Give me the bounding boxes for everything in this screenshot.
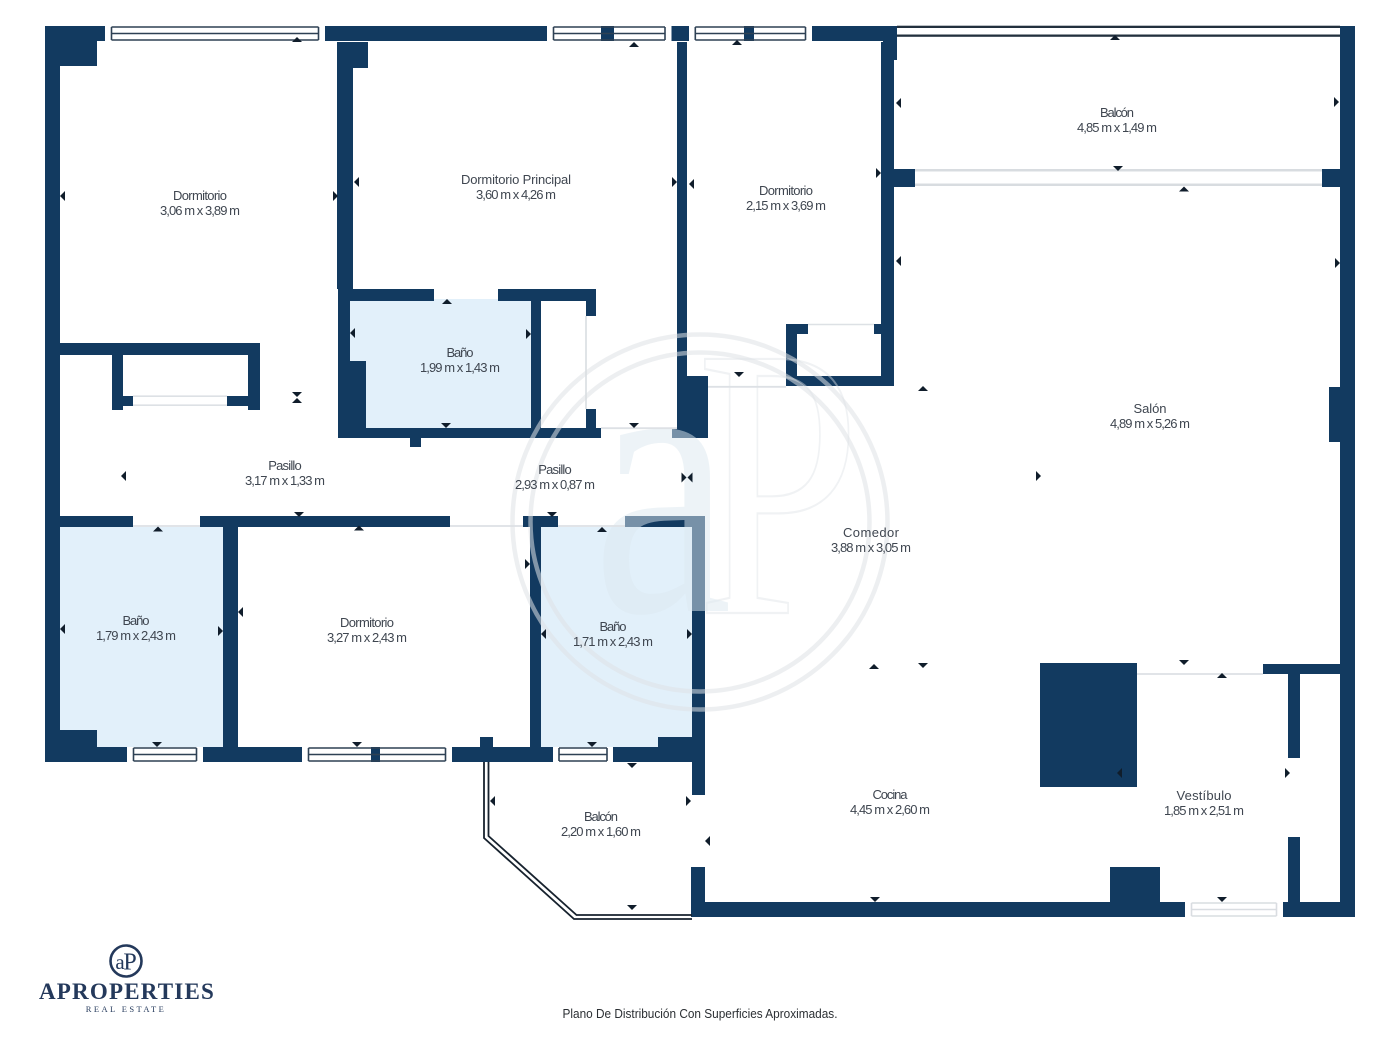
svg-text:Dormitorio: Dormitorio (173, 188, 227, 203)
svg-text:3,06 m x 3,89 m: 3,06 m x 3,89 m (160, 203, 240, 218)
svg-text:Balcón: Balcón (1100, 105, 1134, 120)
svg-text:1,79 m x 2,43 m: 1,79 m x 2,43 m (96, 628, 176, 643)
svg-text:Dormitorio: Dormitorio (340, 615, 394, 630)
svg-text:Baño: Baño (600, 619, 627, 634)
svg-text:Baño: Baño (123, 613, 150, 628)
svg-text:3,88 m x 3,05 m: 3,88 m x 3,05 m (831, 540, 911, 555)
svg-text:3,17 m x 1,33 m: 3,17 m x 1,33 m (245, 473, 325, 488)
svg-text:4,45 m x 2,60 m: 4,45 m x 2,60 m (850, 802, 930, 817)
svg-text:Pasillo: Pasillo (538, 462, 572, 477)
svg-text:2,20 m x 1,60 m: 2,20 m x 1,60 m (561, 824, 641, 839)
svg-text:Baño: Baño (447, 345, 474, 360)
svg-text:1,99 m x 1,43 m: 1,99 m x 1,43 m (420, 360, 500, 375)
svg-text:3,60 m x 4,26 m: 3,60 m x 4,26 m (476, 187, 556, 202)
svg-text:1,71 m x 2,43 m: 1,71 m x 2,43 m (573, 634, 653, 649)
svg-text:Comedor: Comedor (843, 525, 900, 540)
svg-text:2,93 m x 0,87 m: 2,93 m x 0,87 m (515, 477, 595, 492)
svg-text:4,89 m x 5,26 m: 4,89 m x 5,26 m (1110, 416, 1190, 431)
svg-text:Salón: Salón (1134, 401, 1167, 416)
svg-text:4,85 m x 1,49 m: 4,85 m x 1,49 m (1077, 120, 1157, 135)
svg-text:1,85 m x 2,51 m: 1,85 m x 2,51 m (1164, 803, 1244, 818)
svg-text:REAL ESTATE: REAL ESTATE (86, 1004, 166, 1014)
svg-text:APROPERTIES: APROPERTIES (39, 979, 215, 1004)
svg-text:3,27 m x 2,43 m: 3,27 m x 2,43 m (327, 630, 407, 645)
svg-text:Pasillo: Pasillo (268, 458, 302, 473)
svg-text:Vestíbulo: Vestíbulo (1177, 788, 1232, 803)
svg-text:Plano De Distribución Con Supe: Plano De Distribución Con Superficies Ap… (563, 1007, 838, 1021)
svg-text:Cocina: Cocina (873, 787, 909, 802)
svg-text:Dormitorio Principal: Dormitorio Principal (461, 172, 571, 187)
svg-text:Dormitorio: Dormitorio (759, 183, 813, 198)
svg-text:Balcón: Balcón (584, 809, 618, 824)
svg-text:2,15 m x 3,69 m: 2,15 m x 3,69 m (746, 198, 826, 213)
svg-text:P: P (123, 950, 136, 976)
